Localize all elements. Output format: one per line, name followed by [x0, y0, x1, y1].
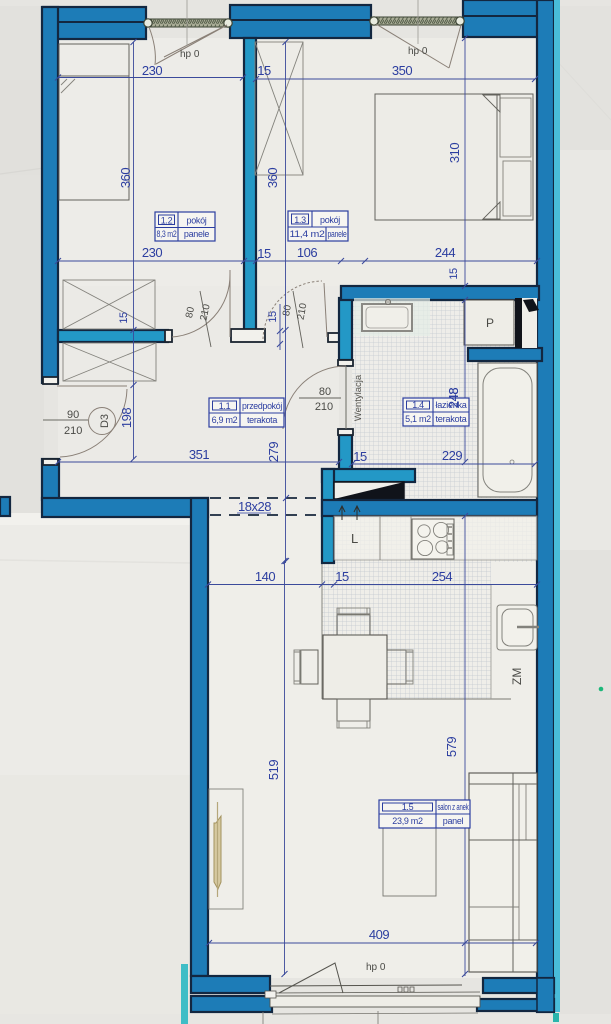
svg-text:1.1: 1.1: [219, 401, 231, 411]
svg-text:panele: panele: [184, 229, 210, 239]
svg-text:80: 80: [319, 386, 331, 398]
svg-text:360: 360: [265, 168, 280, 188]
svg-text:198: 198: [119, 408, 134, 428]
svg-text:15: 15: [118, 312, 130, 324]
svg-text:przedpokój: przedpokój: [242, 401, 282, 411]
svg-text:248: 248: [446, 388, 461, 408]
svg-text:hp 0: hp 0: [408, 46, 428, 57]
svg-text:229: 229: [442, 448, 462, 463]
svg-text:salon z anek: salon z anek: [438, 802, 470, 812]
svg-text:230: 230: [142, 245, 162, 260]
svg-text:90: 90: [67, 409, 79, 421]
svg-text:pokój: pokój: [186, 216, 206, 226]
svg-text:15: 15: [335, 569, 349, 584]
svg-text:8,3 m2: 8,3 m2: [157, 229, 177, 239]
svg-text:15: 15: [353, 449, 367, 464]
svg-text:351: 351: [189, 447, 209, 462]
svg-text:23,9 m2: 23,9 m2: [392, 816, 423, 826]
svg-text:11,4 m2: 11,4 m2: [290, 229, 325, 239]
svg-text:519: 519: [266, 760, 281, 780]
svg-text:210: 210: [64, 425, 82, 437]
svg-text:279: 279: [266, 442, 281, 462]
svg-text:1.4: 1.4: [412, 400, 424, 410]
svg-text:ZM: ZM: [510, 668, 524, 685]
svg-text:210: 210: [315, 401, 333, 413]
svg-text:1.5: 1.5: [402, 802, 414, 812]
svg-text:1.3: 1.3: [294, 215, 306, 225]
svg-text:230: 230: [142, 63, 162, 78]
svg-text:409: 409: [369, 927, 389, 942]
svg-text:106: 106: [297, 245, 317, 260]
svg-text:15: 15: [267, 311, 279, 323]
svg-text:hp 0: hp 0: [180, 49, 200, 60]
svg-text:panele: panele: [328, 229, 347, 239]
svg-text:panel: panel: [443, 816, 464, 826]
svg-text:579: 579: [444, 737, 459, 757]
svg-text:15: 15: [257, 63, 271, 78]
svg-text:254: 254: [432, 569, 452, 584]
svg-text:140: 140: [255, 569, 275, 584]
svg-text:terakota: terakota: [436, 414, 467, 424]
svg-text:1.2: 1.2: [161, 216, 173, 226]
svg-text:P: P: [486, 316, 494, 330]
svg-text:D3: D3: [99, 414, 111, 428]
svg-text:15: 15: [448, 268, 460, 280]
svg-text:5,1 m2: 5,1 m2: [405, 414, 431, 424]
svg-text:310: 310: [447, 143, 462, 163]
svg-text:L: L: [351, 531, 358, 546]
svg-text:pokój: pokój: [320, 215, 340, 225]
svg-text:6,9 m2: 6,9 m2: [212, 415, 238, 425]
svg-text:360: 360: [118, 168, 133, 188]
svg-text:Wentylacja: Wentylacja: [353, 374, 364, 421]
svg-text:15: 15: [257, 246, 271, 261]
svg-text:terakota: terakota: [247, 415, 277, 425]
svg-text:350: 350: [392, 63, 412, 78]
svg-text:18x28: 18x28: [238, 499, 271, 514]
svg-text:244: 244: [435, 245, 455, 260]
svg-text:hp 0: hp 0: [366, 962, 386, 973]
